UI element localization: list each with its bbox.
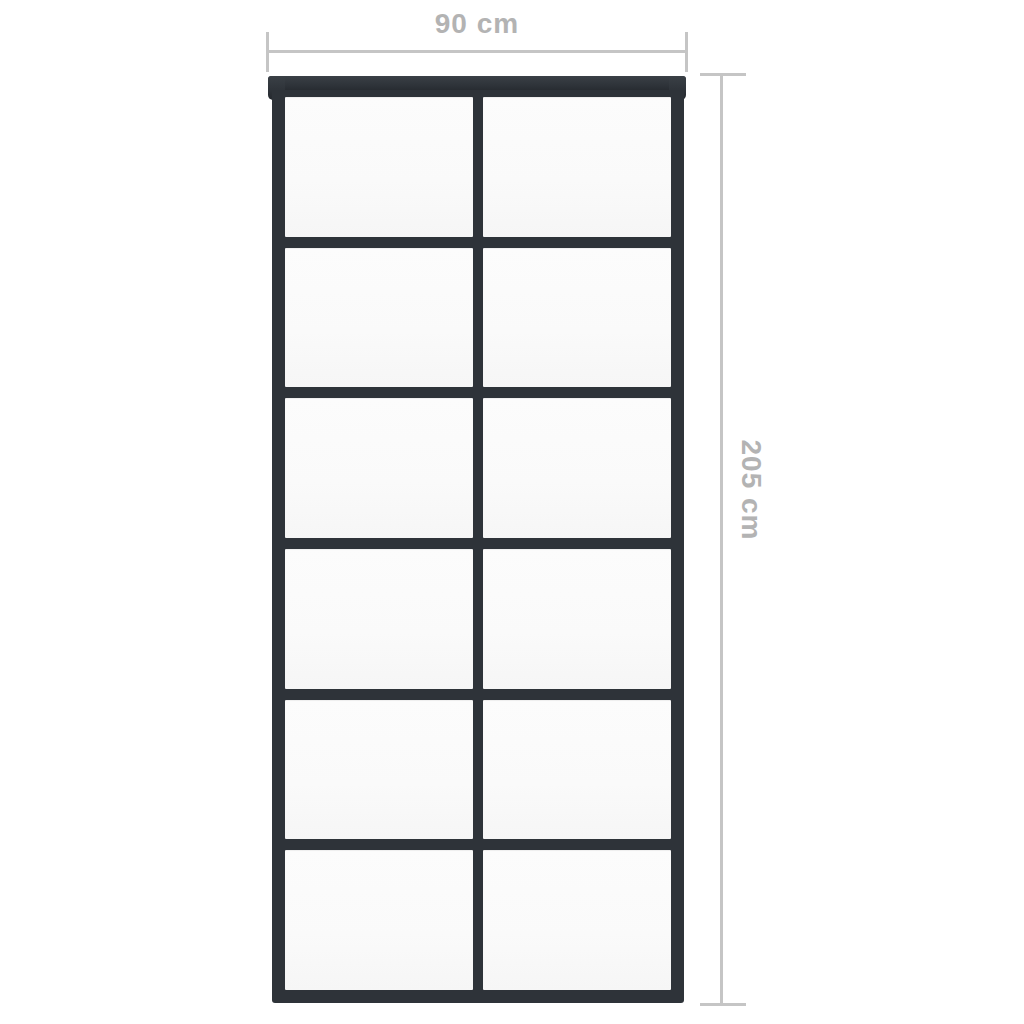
- height-dimension-label: 205 cm: [735, 440, 767, 541]
- height-dimension-line: [720, 73, 723, 1006]
- height-dimension-tick-top: [700, 73, 746, 76]
- glass-pane: [483, 97, 671, 237]
- height-dimension-tick-bottom: [700, 1003, 746, 1006]
- glass-pane: [285, 248, 473, 388]
- glass-pane: [285, 850, 473, 990]
- width-dimension-tick-right: [685, 32, 688, 72]
- door-frame: [272, 90, 684, 1003]
- width-dimension-line: [267, 50, 687, 53]
- width-dimension-label: 90 cm: [268, 8, 686, 40]
- dimension-diagram: 90 cm 205 cm: [0, 0, 1024, 1024]
- glass-pane: [285, 97, 473, 237]
- width-dimension-tick-left: [266, 32, 269, 72]
- glass-pane: [483, 850, 671, 990]
- glass-pane: [483, 248, 671, 388]
- glass-pane: [483, 700, 671, 840]
- glass-pane: [285, 549, 473, 689]
- glass-pane: [483, 398, 671, 538]
- glass-pane: [285, 700, 473, 840]
- glass-pane: [483, 549, 671, 689]
- glass-pane: [285, 398, 473, 538]
